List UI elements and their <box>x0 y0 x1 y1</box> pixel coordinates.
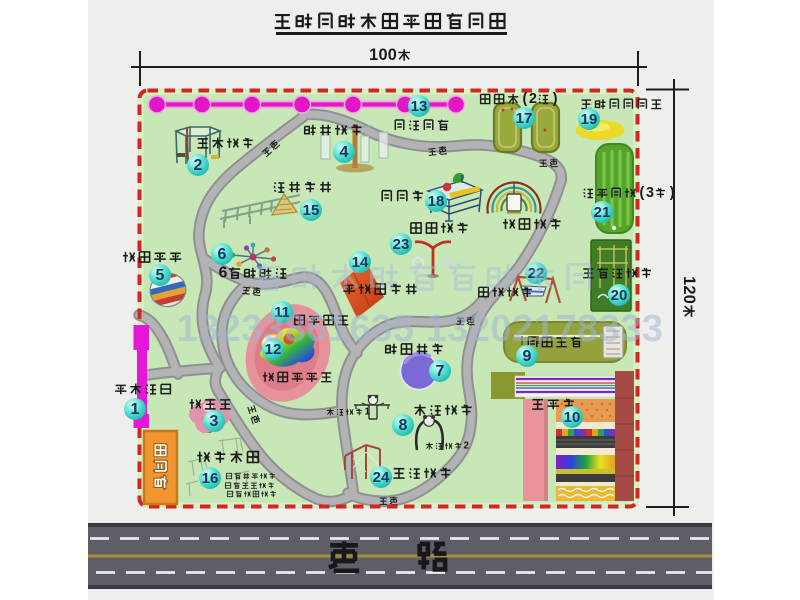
svg-text:): ) <box>553 91 558 107</box>
svg-text:17: 17 <box>516 110 533 127</box>
svg-text:2: 2 <box>463 441 469 452</box>
svg-text:(: ( <box>523 91 528 107</box>
svg-text:6: 6 <box>219 265 228 282</box>
svg-text:3: 3 <box>210 413 219 430</box>
svg-text:1: 1 <box>364 407 370 418</box>
svg-text:10: 10 <box>564 409 581 426</box>
svg-text:18: 18 <box>428 193 445 210</box>
svg-text:5: 5 <box>156 267 165 284</box>
svg-text:2: 2 <box>680 285 698 294</box>
svg-text:0: 0 <box>680 295 698 304</box>
svg-text:23: 23 <box>393 236 410 253</box>
svg-text:4: 4 <box>340 144 349 161</box>
svg-text:14: 14 <box>352 254 369 271</box>
svg-text:6: 6 <box>218 246 227 263</box>
svg-text:1: 1 <box>680 276 698 285</box>
svg-text:0: 0 <box>388 46 397 64</box>
svg-text:): ) <box>670 185 675 201</box>
svg-text:24: 24 <box>373 469 390 486</box>
svg-text:2: 2 <box>529 91 537 107</box>
svg-text:0: 0 <box>378 46 387 64</box>
svg-text:1: 1 <box>131 401 140 418</box>
svg-text:13: 13 <box>411 98 428 115</box>
svg-text:(: ( <box>640 185 645 201</box>
svg-text:1: 1 <box>369 46 378 64</box>
svg-text:9: 9 <box>523 348 532 365</box>
svg-text:2: 2 <box>194 157 203 174</box>
svg-text:7: 7 <box>436 363 445 380</box>
svg-text:13233861635 13202178333: 13233861635 13202178333 <box>176 308 663 350</box>
svg-text:15: 15 <box>303 202 320 219</box>
svg-text:20: 20 <box>611 287 628 304</box>
svg-text:19: 19 <box>581 111 598 128</box>
svg-text:8: 8 <box>399 417 408 434</box>
svg-text:21: 21 <box>594 204 611 221</box>
svg-text:16: 16 <box>202 470 219 487</box>
svg-text:3: 3 <box>646 185 654 201</box>
